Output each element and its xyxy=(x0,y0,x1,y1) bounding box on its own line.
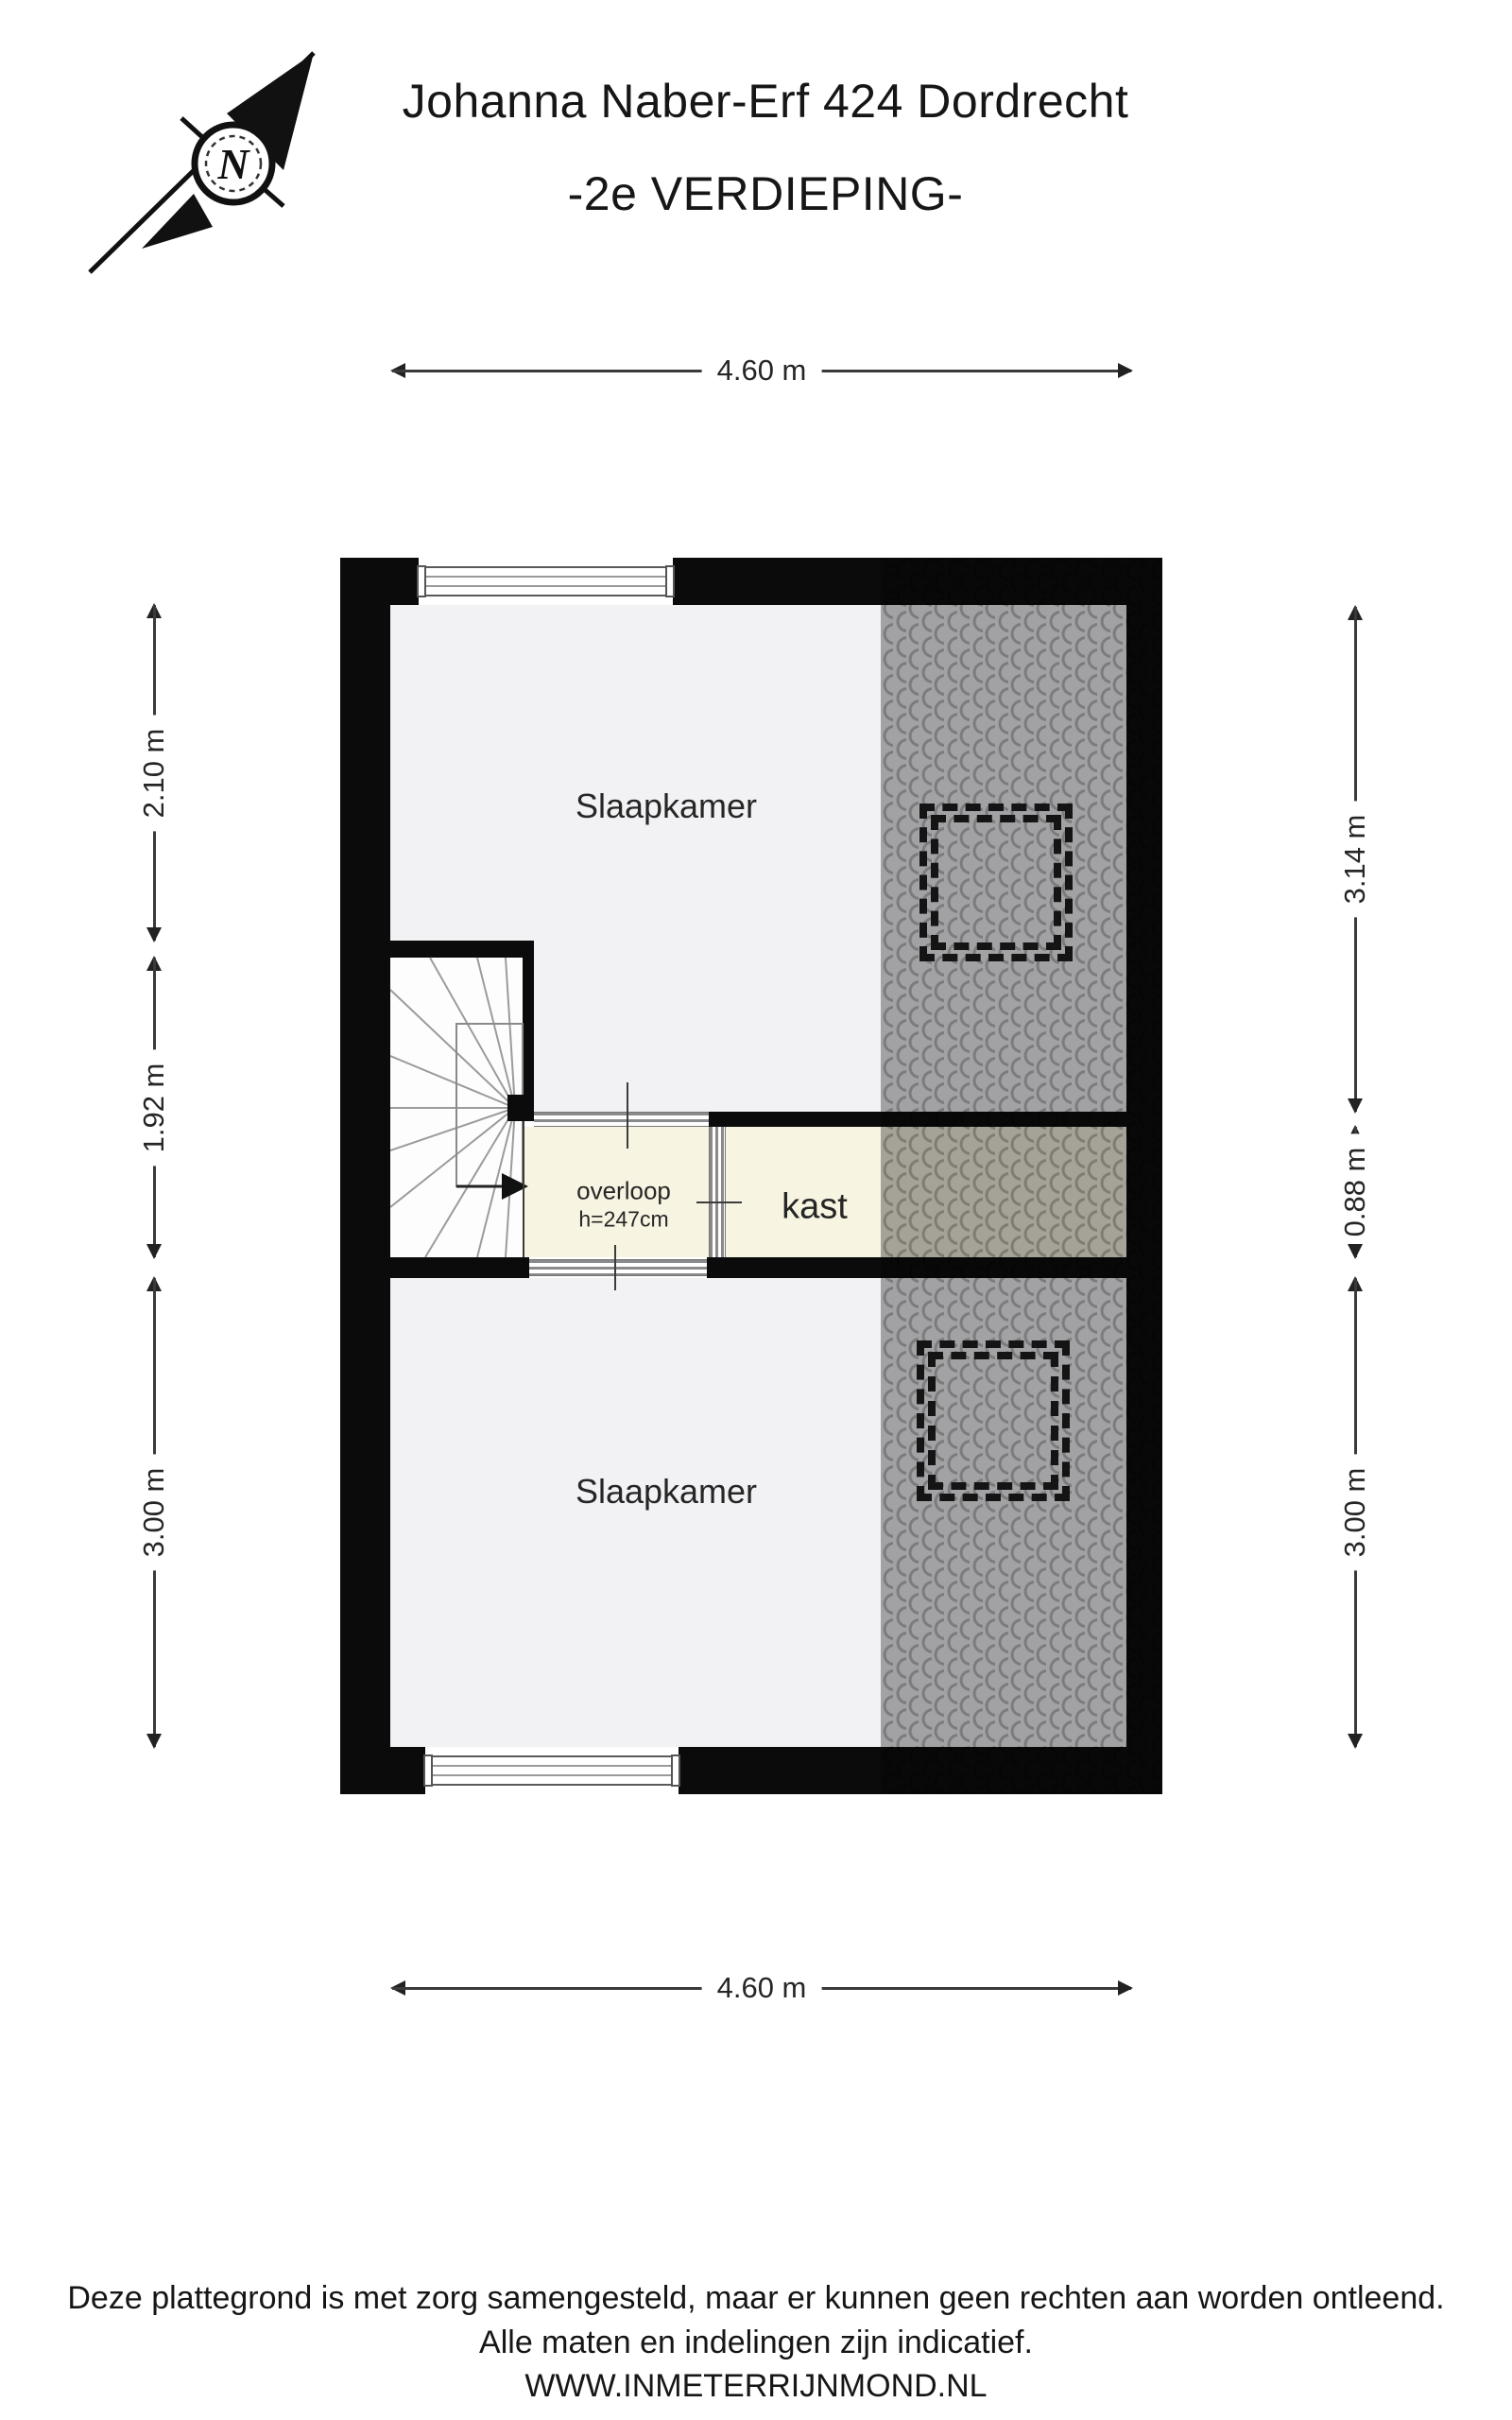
dimension-right-3-label: 3.00 m xyxy=(1336,1455,1374,1571)
footer-disclaimer-line2: Alle maten en indelingen zijn indicatief… xyxy=(0,2325,1512,2361)
dimension-right-3: 3.00 m xyxy=(1345,1278,1366,1747)
window-bottom xyxy=(425,1755,679,1786)
section-tick-top xyxy=(627,1082,628,1149)
dimension-right-1: 3.14 m xyxy=(1345,607,1366,1112)
dimension-left-3: 3.00 m xyxy=(144,1278,164,1747)
section-tick-closet xyxy=(696,1201,742,1203)
dimension-bottom: 4.60 m xyxy=(392,1978,1131,1998)
closet-partition-left xyxy=(709,1127,726,1257)
dimension-right-1-label: 3.14 m xyxy=(1336,802,1374,918)
dimension-top: 4.60 m xyxy=(392,360,1131,381)
window-top xyxy=(419,566,673,596)
landing-label: overloop xyxy=(576,1177,671,1206)
dimension-left-1: 2.10 m xyxy=(144,605,164,941)
floorplan-drawing: Slaapkamer Slaapkamer overloop h=247cm k… xyxy=(340,558,1162,1794)
landing-partition-top xyxy=(534,1112,709,1127)
section-tick-bottom xyxy=(614,1245,616,1290)
dimension-right-2: 0.88 m xyxy=(1345,1127,1366,1257)
closet-label: kast xyxy=(782,1187,848,1228)
roof-window-outline-top xyxy=(919,804,1073,961)
roof-window-outline-bottom xyxy=(917,1340,1070,1501)
dimension-left-3-label: 3.00 m xyxy=(135,1455,173,1571)
wall-left xyxy=(340,558,390,1794)
floorplan-page: Johanna Naber-Erf 424 Dordrecht -2e VERD… xyxy=(0,0,1512,2420)
roof-hatch-area xyxy=(881,558,1162,1794)
footer-disclaimer-line1: Deze plattegrond is met zorg samengestel… xyxy=(0,2280,1512,2317)
dimension-right-2-label: 0.88 m xyxy=(1336,1134,1374,1251)
landing-partition-bottom xyxy=(529,1259,707,1276)
bedroom-bottom-label: Slaapkamer xyxy=(576,1472,757,1512)
footer-website: WWW.INMETERRIJNMOND.NL xyxy=(0,2368,1512,2405)
stair-landing-divider xyxy=(523,1121,524,1257)
bedroom-top-label: Slaapkamer xyxy=(576,786,757,826)
landing-height-label: h=247cm xyxy=(578,1207,668,1233)
compass-north-icon: N xyxy=(52,19,354,302)
svg-text:N: N xyxy=(216,140,250,188)
dimension-left-1-label: 2.10 m xyxy=(135,715,173,831)
dimension-left-2: 1.92 m xyxy=(144,958,164,1257)
dimension-bottom-label: 4.60 m xyxy=(702,1969,822,2007)
stairs-icon xyxy=(390,941,534,1257)
dimension-left-2-label: 1.92 m xyxy=(135,1049,173,1166)
dimension-top-label: 4.60 m xyxy=(702,352,822,389)
wall-bottom-left xyxy=(340,1747,425,1794)
stairwell-wall-bottom xyxy=(390,1257,529,1278)
